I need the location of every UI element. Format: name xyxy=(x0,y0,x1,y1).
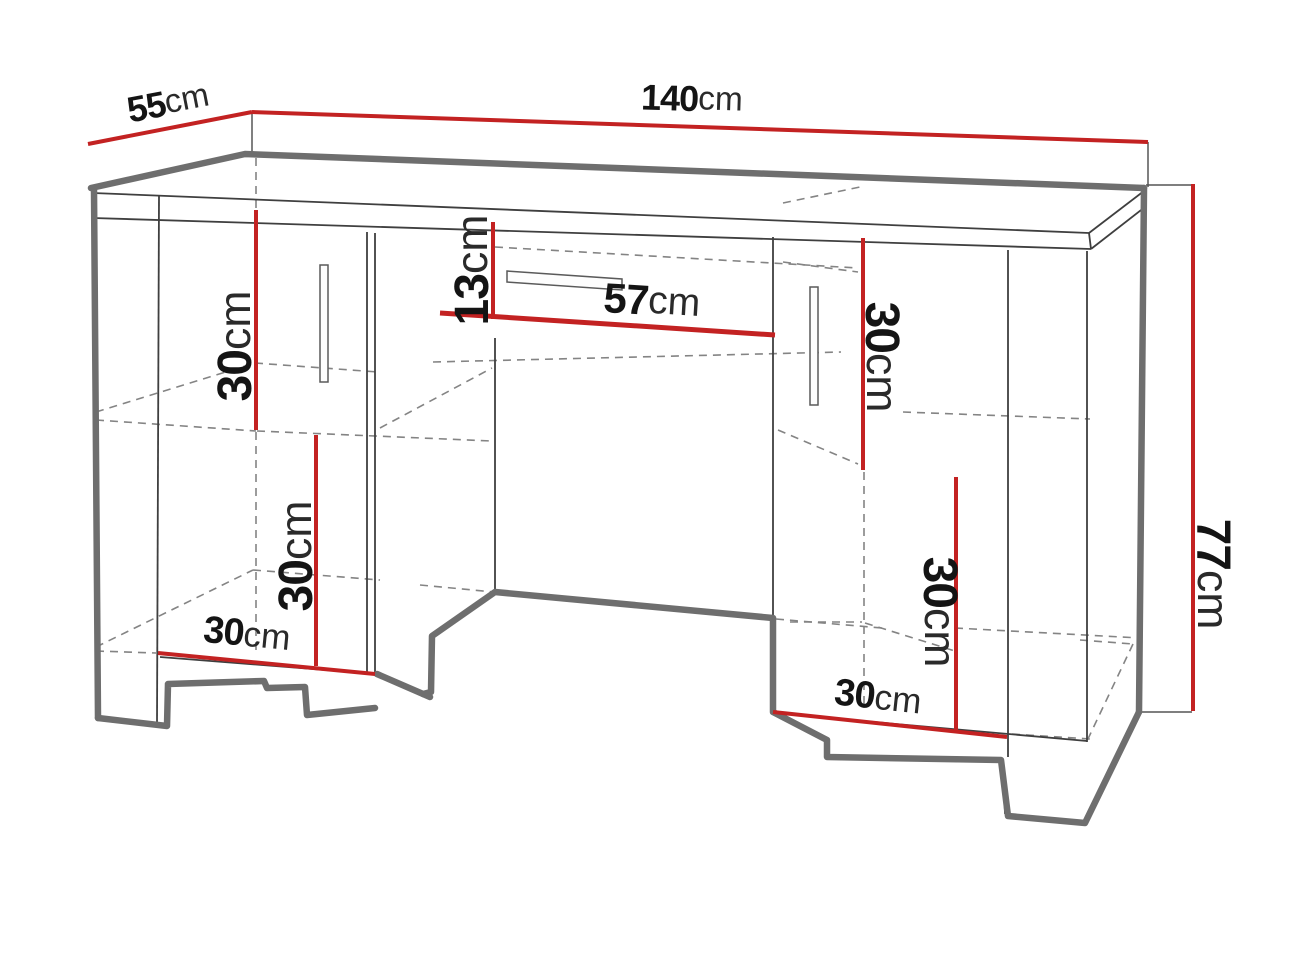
dim-label-left-lower-compartment: 30cm xyxy=(270,501,323,612)
desk-top-bottom-edge xyxy=(93,218,1091,249)
hidden-line xyxy=(778,430,858,464)
hidden-line xyxy=(903,412,1090,419)
dim-line-left-bottom-30 xyxy=(158,653,375,674)
left-feet-profile xyxy=(98,681,375,726)
desk-dimension-diagram-page: 55cm 140cm 77cm 30cm 30cm 30cm 13cm 57cm… xyxy=(0,0,1295,971)
dim-label-drawer-height: 13cm xyxy=(446,215,499,326)
hidden-line xyxy=(380,368,492,428)
desk-top-side-edge xyxy=(1091,207,1145,249)
left-door-handle xyxy=(320,265,328,382)
left-side-panel-inner-edge xyxy=(157,196,159,724)
hidden-line xyxy=(1080,640,1133,644)
desk-top-right-cap xyxy=(1089,233,1091,249)
dim-label-right-lower-compartment: 30cm xyxy=(914,557,967,668)
carcass-top-edges xyxy=(91,154,1144,188)
desk-top-side-edge xyxy=(1089,191,1144,233)
dim-label-drawer-width: 57cm xyxy=(602,274,701,327)
left-pedestal-foot-slant xyxy=(377,674,430,697)
dim-label-right-upper-compartment: 30cm xyxy=(856,302,909,413)
hidden-line xyxy=(1087,644,1133,741)
hidden-line xyxy=(96,420,256,431)
carcass-left-edge xyxy=(94,190,98,718)
dim-label-width: 140cm xyxy=(641,76,744,120)
hidden-line xyxy=(420,585,494,592)
dim-label-left-pedestal-depth: 30cm xyxy=(202,609,293,659)
hidden-line xyxy=(96,651,156,653)
hidden-line xyxy=(255,363,378,372)
desk-outline-thick xyxy=(91,154,1144,823)
dim-label-right-pedestal-depth: 30cm xyxy=(832,671,923,722)
hidden-line xyxy=(955,628,1140,638)
carcass-right-edge xyxy=(1139,188,1144,712)
hidden-line xyxy=(783,187,860,203)
right-door-handle xyxy=(810,287,818,405)
desk-dimension-diagram: 55cm 140cm 77cm 30cm 30cm 30cm 13cm 57cm… xyxy=(0,0,1295,971)
desk-top-front-edge xyxy=(93,193,1089,233)
dim-label-height: 77cm xyxy=(1187,519,1240,630)
carcass-bottom-right-and-kneehole xyxy=(423,592,1139,823)
dim-label-left-upper-compartment: 30cm xyxy=(209,291,262,402)
